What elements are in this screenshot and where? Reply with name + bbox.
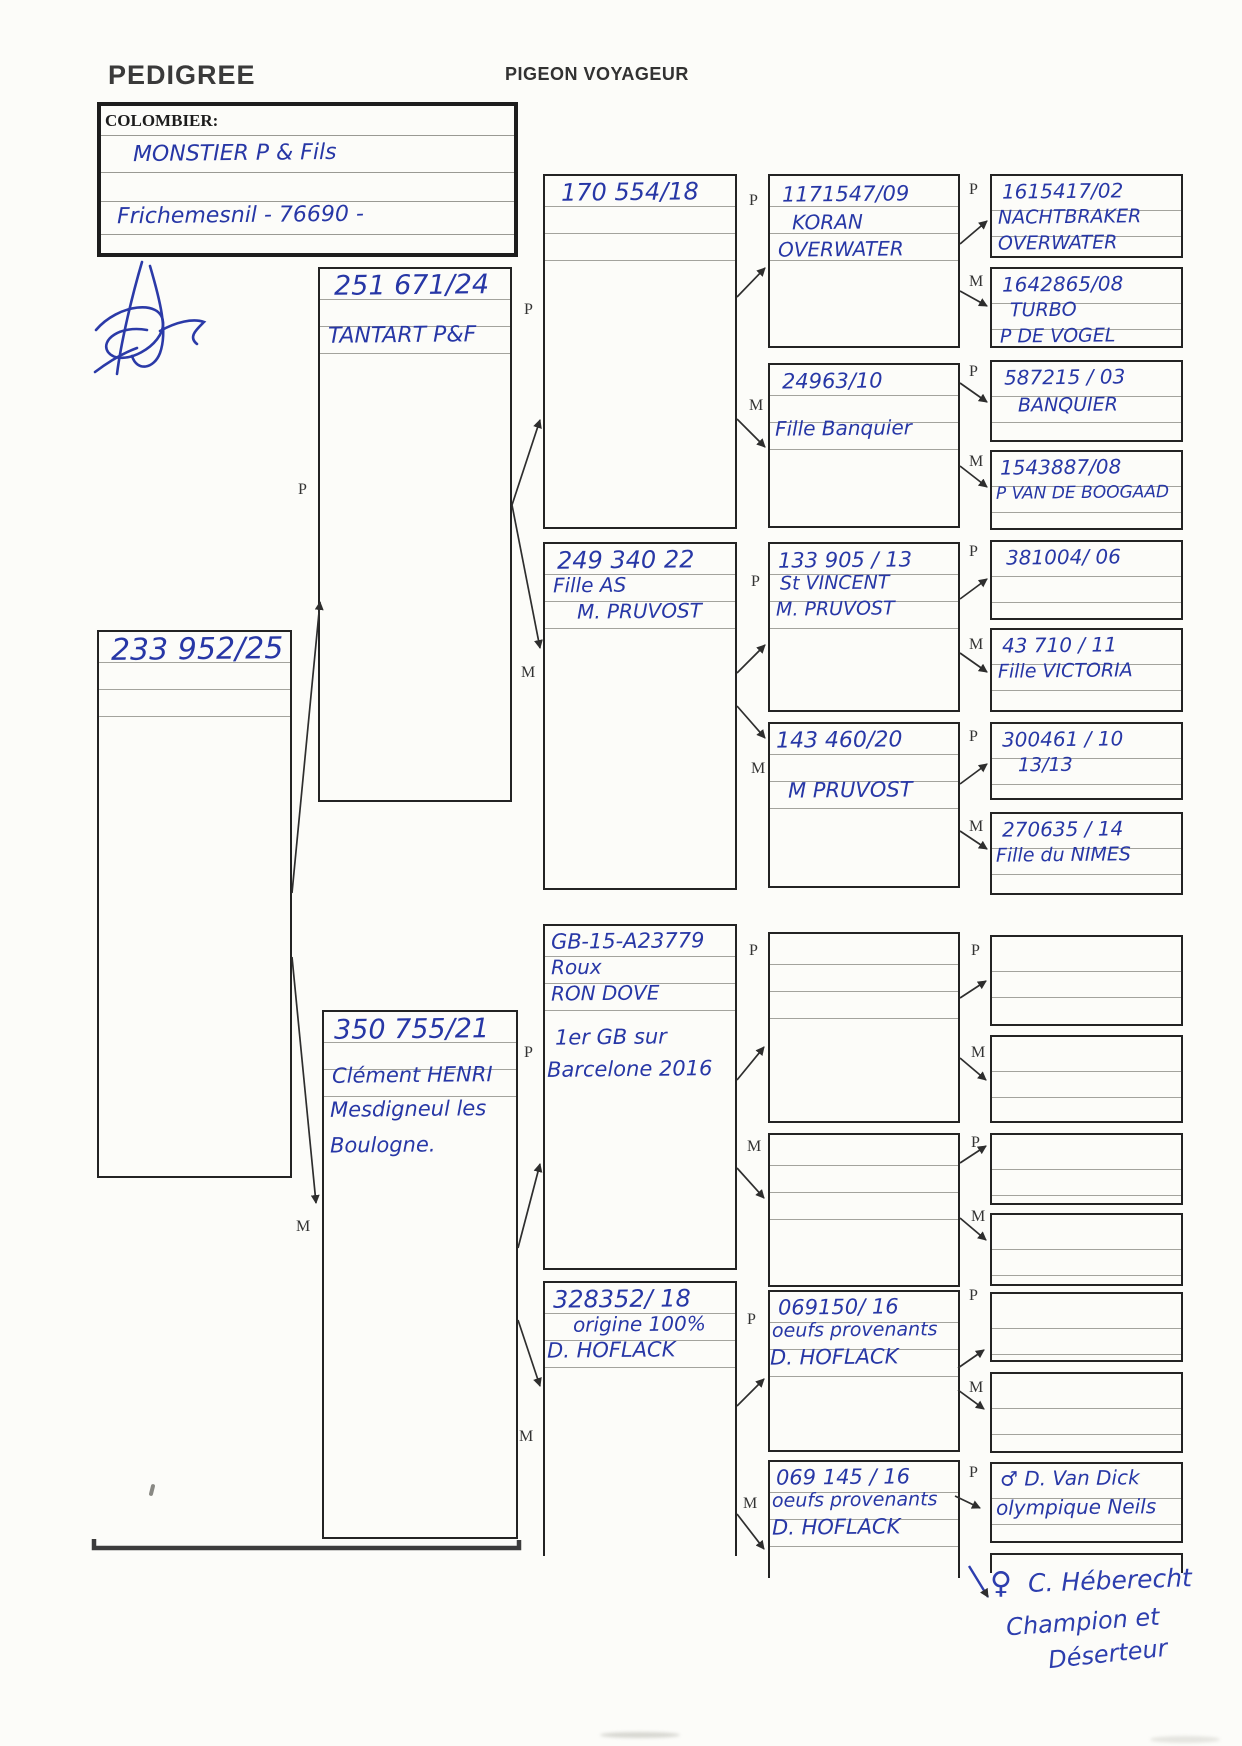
- pedigree-sheet: PEDIGREE PIGEON VOYAGEUR COLOMBIER: MONS…: [0, 0, 1242, 1746]
- annotation-arrow: [969, 1566, 988, 1597]
- female-symbol: ♀: [990, 1566, 1012, 1601]
- gen4-box-5: [768, 932, 960, 1123]
- father-box: 251 671/24 TANTART P&F: [318, 267, 512, 802]
- relation-label-m: M: [743, 1495, 757, 1513]
- gen5-box6-line1: 43 710 / 11: [1002, 634, 1117, 656]
- gen5-box8-line1: 270635 / 14: [1002, 818, 1123, 840]
- gen4-box1-line3: OVERWATER: [778, 238, 904, 260]
- gen5-box6-line2: Fille VICTORIA: [998, 661, 1133, 682]
- relation-label-p: P: [969, 543, 978, 561]
- gen5-box-2: 1642865/08 TURBO P DE VOGEL: [990, 267, 1183, 348]
- father-ring: 251 671/24: [334, 271, 489, 301]
- relation-label-p: P: [969, 181, 978, 199]
- page-title: PEDIGREE: [108, 60, 256, 91]
- gen5-box7-line1: 300461 / 10: [1002, 728, 1123, 750]
- relation-label-m: M: [969, 273, 983, 291]
- colombier-label: COLOMBIER:: [105, 111, 218, 131]
- gen3-box2-ring: 249 340 22: [557, 547, 695, 574]
- gen5-box2-line3: P DE VOGEL: [1000, 326, 1116, 347]
- annotation-line2: Champion et: [1005, 1603, 1160, 1642]
- relation-label-m: M: [969, 818, 983, 836]
- gen3-box2-line3: M. PRUVOST: [577, 600, 702, 622]
- mother-town2: Boulogne.: [330, 1133, 436, 1156]
- relation-label-m: M: [296, 1218, 310, 1236]
- gen3-box-4: 328352/ 18 origine 100% D. HOFLACK: [543, 1281, 737, 1556]
- gen5-box1-line3: OVERWATER: [998, 233, 1118, 254]
- gen4-box1-line2: KORAN: [792, 212, 863, 234]
- gen5-box1-line1: 1615417/02: [1002, 180, 1123, 202]
- gen4-box3-line2: St VINCENT: [780, 573, 890, 594]
- gen4-box7-line3: D. HOFLACK: [770, 1345, 899, 1368]
- gen5-box-4: 1543887/08 P VAN DE BOOGAAD: [990, 450, 1183, 530]
- gen4-box1-ring: 1171547/09: [782, 182, 910, 205]
- scan-smudge: [1150, 1736, 1220, 1743]
- page-subtitle: PIGEON VOYAGEUR: [505, 64, 689, 85]
- gen5-box-10: [990, 1035, 1183, 1123]
- gen5-box4-line1: 1543887/08: [1000, 456, 1121, 478]
- gen4-box3-line3: M. PRUVOST: [776, 599, 895, 620]
- signature-scribble: [95, 262, 204, 374]
- relation-label-p: P: [747, 1311, 756, 1329]
- relation-label-p: P: [298, 481, 307, 499]
- gen5-box-3: 587215 / 03 BANQUIER: [990, 360, 1183, 442]
- gen5-box3-line2: BANQUIER: [1018, 395, 1118, 416]
- gen4-box-8: 069 145 / 16 oeufs provenants D. HOFLACK: [768, 1460, 960, 1578]
- gen4-box8-line3: D. HOFLACK: [772, 1515, 901, 1538]
- relation-label-p: P: [749, 942, 758, 960]
- relation-label-m: M: [519, 1428, 533, 1446]
- relation-label-m: M: [971, 1044, 985, 1062]
- gen5-box-15: ♂ D. Van Dick olympique Neils: [990, 1462, 1183, 1543]
- relation-label-p: P: [971, 1134, 980, 1152]
- gen5-box-8: 270635 / 14 Fille du NIMES: [990, 812, 1183, 895]
- gen5-box-7: 300461 / 10 13/13: [990, 722, 1183, 800]
- annotation-name: C. Héberecht: [1028, 1563, 1193, 1598]
- gen5-box15-line1: ♂ D. Van Dick: [1000, 1467, 1140, 1489]
- gen4-box-7: 069150/ 16 oeufs provenants D. HOFLACK: [768, 1290, 960, 1452]
- relation-label-m: M: [747, 1138, 761, 1156]
- relation-label-m: M: [749, 397, 763, 415]
- gen5-box5-line1: 381004/ 06: [1006, 546, 1121, 568]
- gen4-box-3: 133 905 / 13 St VINCENT M. PRUVOST: [768, 542, 960, 712]
- gen5-box4-line2: P VAN DE BOOGAAD: [996, 484, 1169, 504]
- gen5-box-6: 43 710 / 11 Fille VICTORIA: [990, 628, 1183, 712]
- gen4-box-1: 1171547/09 KORAN OVERWATER: [768, 174, 960, 348]
- gen4-box8-line2: oeufs provenants: [772, 1490, 938, 1512]
- gen4-box7-ring: 069150/ 16: [778, 1295, 899, 1318]
- gen5-box-1: 1615417/02 NACHTBRAKER OVERWATER: [990, 174, 1183, 258]
- gen3-box-1: 170 554/18: [543, 174, 737, 529]
- relation-label-m: M: [521, 664, 535, 682]
- gen5-box15-line2: olympique Neils: [996, 1496, 1156, 1519]
- relation-label-m: M: [969, 1379, 983, 1397]
- mother-box: 350 755/21 Clément HENRI Mesdigneul les …: [322, 1010, 518, 1539]
- relation-label-m: M: [969, 453, 983, 471]
- gen5-box2-line2: TURBO: [1010, 301, 1077, 322]
- gen5-box-5: 381004/ 06: [990, 540, 1183, 620]
- gen4-box7-line2: oeufs provenants: [772, 1320, 938, 1342]
- relation-label-p: P: [969, 1464, 978, 1482]
- scan-smudge: [600, 1732, 680, 1738]
- gen5-box1-line2: NACHTBRAKER: [998, 207, 1141, 228]
- subject-ring: 233 952/25: [111, 633, 284, 666]
- mother-town: Mesdigneul les: [330, 1097, 486, 1121]
- bottom-bracket-line: [94, 1539, 519, 1548]
- gen4-box-4: 143 460/20 M PRUVOST: [768, 722, 960, 888]
- relation-label-m: M: [969, 636, 983, 654]
- gen3-box4-line3: D. HOFLACK: [547, 1338, 676, 1361]
- gen5-box-13: [990, 1292, 1183, 1362]
- gen4-box2-line2: Fille Banquier: [775, 417, 912, 439]
- relation-label-p: P: [969, 728, 978, 746]
- gen3-box3-line2: Roux: [551, 957, 602, 979]
- mother-ring: 350 755/21: [334, 1015, 489, 1045]
- gen4-box4-line2: M PRUVOST: [788, 778, 913, 801]
- gen3-box3-line5: Barcelone 2016: [547, 1057, 713, 1081]
- gen3-box4-ring: 328352/ 18: [553, 1286, 691, 1313]
- gen3-box4-line2: origine 100%: [573, 1313, 706, 1335]
- relation-label-p: P: [524, 1044, 533, 1062]
- gen4-box-2: 24963/10 Fille Banquier: [768, 363, 960, 528]
- gen4-box2-ring: 24963/10: [782, 369, 883, 392]
- father-name: TANTART P&F: [328, 323, 476, 348]
- pen-tick: [149, 1484, 156, 1497]
- relation-label-p: P: [751, 573, 760, 591]
- mother-name: Clément HENRI: [332, 1063, 493, 1087]
- gen5-box3-line1: 587215 / 03: [1004, 366, 1125, 388]
- relation-label-p: P: [971, 942, 980, 960]
- gen5-box8-line2: Fille du NIMES: [996, 845, 1131, 866]
- colombier-box: COLOMBIER: MONSTIER P & Fils Frichemesni…: [97, 102, 518, 257]
- annotation-line3: Déserteur: [1047, 1634, 1169, 1674]
- gen4-box3-ring: 133 905 / 13: [778, 548, 912, 571]
- gen4-box4-ring: 143 460/20: [776, 728, 903, 752]
- gen3-box3-line4: 1er GB sur: [555, 1025, 667, 1048]
- gen3-box-3: GB-15-A23779 Roux RON DOVE 1er GB sur Ba…: [543, 924, 737, 1270]
- relation-label-p: P: [969, 363, 978, 381]
- relation-label-m: M: [751, 760, 765, 778]
- gen5-box-11: [990, 1133, 1183, 1205]
- colombier-address: Frichemesnil - 76690 -: [117, 203, 364, 229]
- colombier-owner: MONSTIER P & Fils: [133, 141, 337, 166]
- gen5-box2-line1: 1642865/08: [1002, 273, 1123, 295]
- gen3-box-2: 249 340 22 Fille AS M. PRUVOST: [543, 542, 737, 890]
- relation-label-p: P: [969, 1287, 978, 1305]
- gen3-box1-ring: 170 554/18: [561, 179, 699, 206]
- relation-label-m: M: [971, 1208, 985, 1226]
- gen4-box-6: [768, 1133, 960, 1287]
- gen3-box3-line3: RON DOVE: [551, 982, 660, 1004]
- gen3-box3-ring: GB-15-A23779: [551, 929, 705, 953]
- gen5-box-9: [990, 935, 1183, 1026]
- gen5-box7-line2: 13/13: [1018, 756, 1073, 777]
- gen4-box8-ring: 069 145 / 16: [776, 1465, 910, 1488]
- relation-label-p: P: [749, 192, 758, 210]
- subject-box: 233 952/25: [97, 630, 292, 1178]
- gen3-box2-line2: Fille AS: [553, 575, 626, 597]
- gen5-box-14: [990, 1372, 1183, 1453]
- gen5-box-12: [990, 1213, 1183, 1286]
- relation-label-p: P: [524, 301, 533, 319]
